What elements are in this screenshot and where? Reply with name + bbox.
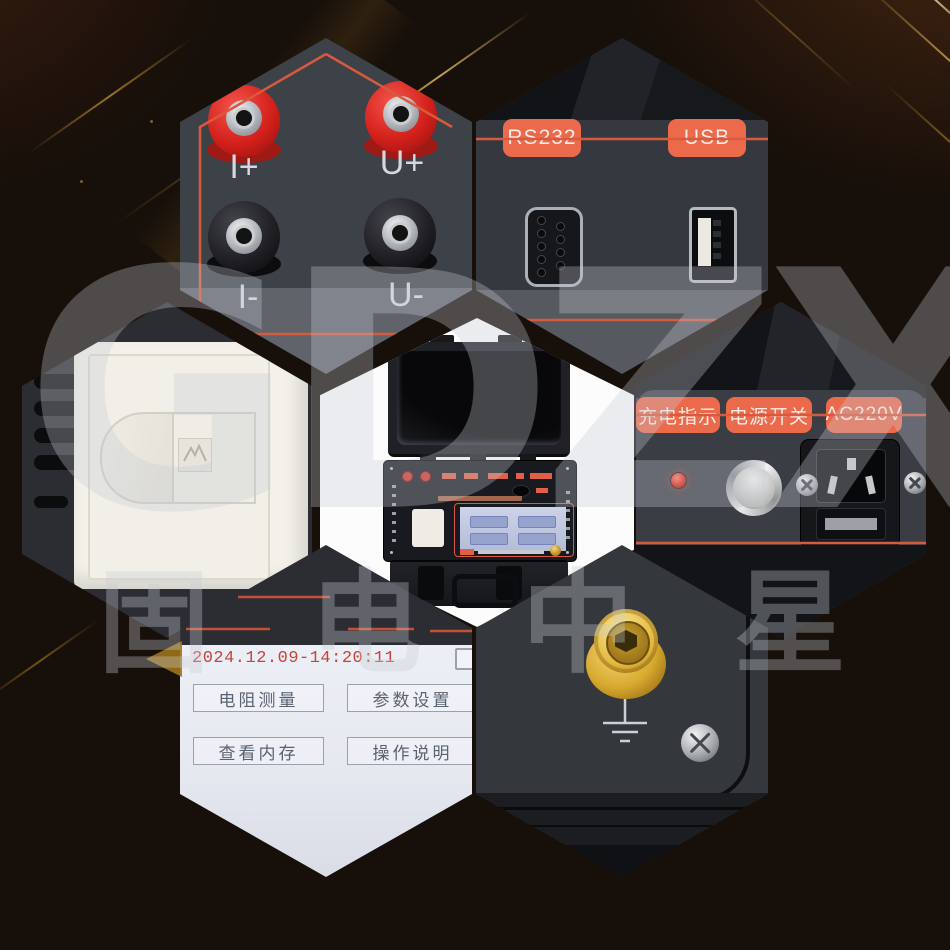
panel-marking	[516, 473, 524, 479]
panel-marking	[442, 473, 456, 479]
case-latch	[418, 566, 444, 600]
product-collage: { "brand": { "logo_text": "GDZX", "brand…	[0, 0, 950, 950]
panel-marking	[536, 488, 548, 493]
mini-menu-button	[518, 533, 556, 545]
ground-symbol-icon	[596, 697, 654, 749]
panel-title-bar	[438, 496, 522, 501]
paper-slot-arc	[100, 412, 174, 504]
printer-logo-icon	[178, 438, 212, 472]
gold-streak	[885, 83, 950, 218]
panel-marking	[488, 473, 508, 479]
spark-dot	[150, 120, 153, 123]
case-lid-interior	[397, 351, 561, 445]
case-handle	[452, 574, 518, 608]
mini-menu-button	[518, 516, 556, 528]
gold-streak	[722, 0, 857, 92]
mini-binding-post	[402, 471, 413, 482]
mini-menu-button	[470, 533, 508, 545]
spark-dot	[80, 180, 83, 183]
brand-text-bar	[478, 550, 544, 554]
front-panel	[383, 460, 577, 562]
mini-menu-button	[470, 516, 508, 528]
gold-streak	[28, 38, 193, 154]
gold-streak	[860, 0, 950, 142]
panel-marking	[530, 473, 552, 479]
gold-arrow-accent	[146, 641, 182, 677]
panel-screw	[566, 467, 569, 470]
panel-screw	[390, 551, 393, 554]
thermal-printer	[74, 342, 308, 589]
phillips-screw	[681, 724, 719, 762]
case-groove	[476, 807, 768, 810]
brand-logo-mark	[460, 549, 474, 555]
panel-screw	[390, 467, 393, 470]
device-lcd	[460, 507, 566, 551]
panel-marking	[464, 473, 478, 479]
vent-slot	[34, 496, 68, 508]
gold-streak	[0, 620, 98, 702]
case-lid	[388, 342, 570, 457]
panel-dots	[392, 485, 396, 545]
mini-printer	[412, 509, 444, 547]
mini-binding-post	[420, 471, 431, 482]
mini-ground-terminal	[550, 545, 561, 556]
